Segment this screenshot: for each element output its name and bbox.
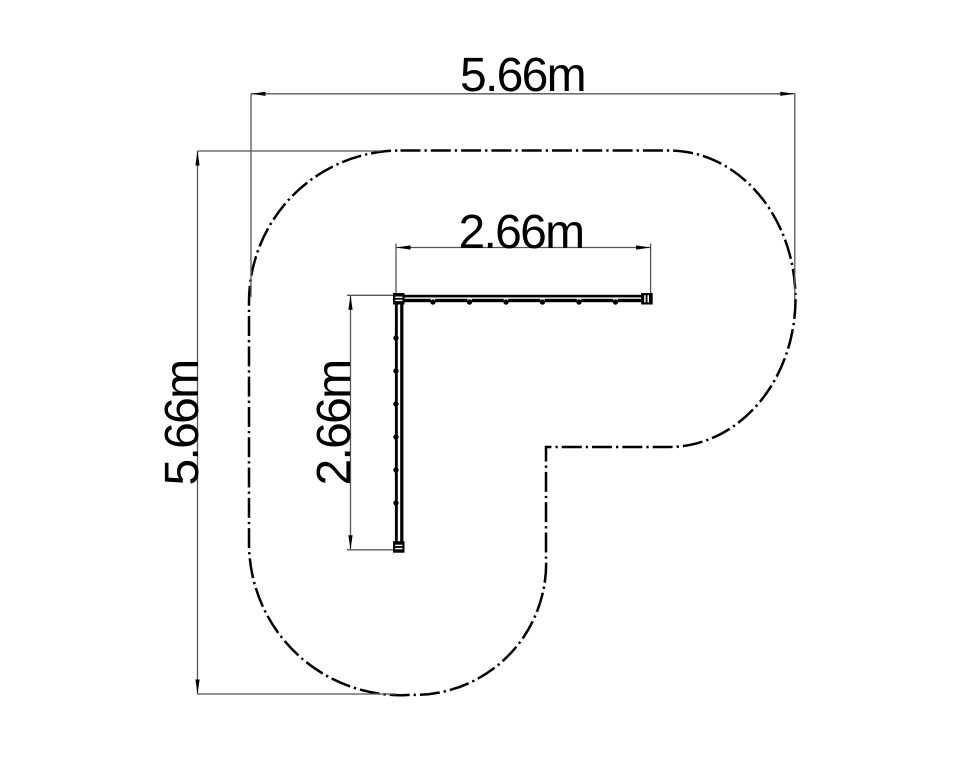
svg-text:5.66m: 5.66m xyxy=(156,361,209,486)
svg-text:2.66m: 2.66m xyxy=(308,361,361,486)
svg-text:5.66m: 5.66m xyxy=(460,49,585,102)
svg-text:2.66m: 2.66m xyxy=(459,206,584,259)
